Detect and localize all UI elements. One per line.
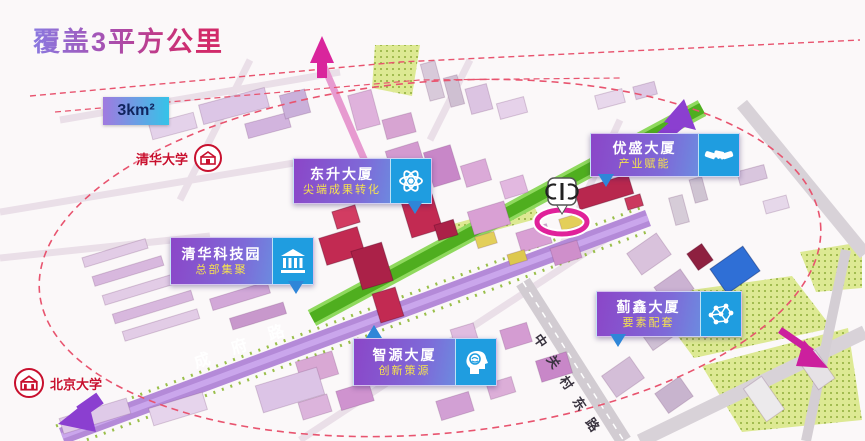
- building-label-dongsheng: 东升大厦 尖端成果转化: [293, 158, 432, 204]
- peking-university-name: 北京大学: [50, 374, 102, 393]
- building-name: 智源大厦: [373, 346, 437, 364]
- bank-icon: [272, 238, 313, 284]
- label-pointer: [288, 281, 304, 294]
- building-label-tuspark: 清华科技园 总部集聚: [170, 237, 314, 285]
- label-pointer: [366, 325, 382, 338]
- label-pointer: [598, 174, 614, 187]
- brain-icon: [455, 339, 496, 385]
- university-gate-icon: [194, 144, 222, 172]
- label-pointer: [407, 201, 423, 214]
- atom-icon: [390, 159, 431, 203]
- building-tag: 创新策源: [379, 364, 431, 378]
- building-tag: 尖端成果转化: [303, 183, 381, 197]
- building-label-jixin: 蓟鑫大厦 要素配套: [596, 291, 742, 337]
- university-gate-icon: [14, 368, 44, 398]
- building-name: 蓟鑫大厦: [617, 298, 681, 316]
- building-name: 清华科技园: [182, 245, 262, 263]
- building-name: 优盛大厦: [613, 139, 677, 157]
- tsinghua-university-name: 清华大学: [136, 149, 188, 168]
- handshake-icon: [698, 134, 739, 176]
- building-label-zhiyuan: 智源大厦 创新策源: [353, 338, 497, 386]
- area-badge: 3km²: [103, 97, 169, 125]
- building-label-yousheng: 优盛大厦 产业赋能: [590, 133, 740, 177]
- molecule-icon: [700, 292, 741, 336]
- building-tag: 产业赋能: [619, 157, 671, 171]
- peking-university-label: 北京大学: [14, 368, 102, 398]
- building-tag: 要素配套: [623, 316, 675, 330]
- label-pointer: [610, 334, 626, 347]
- page-title: 覆盖3平方公里: [33, 20, 224, 59]
- building-tag: 总部集聚: [196, 263, 248, 277]
- building-name: 东升大厦: [310, 165, 374, 183]
- tsinghua-university-label: 清华大学: [136, 144, 222, 172]
